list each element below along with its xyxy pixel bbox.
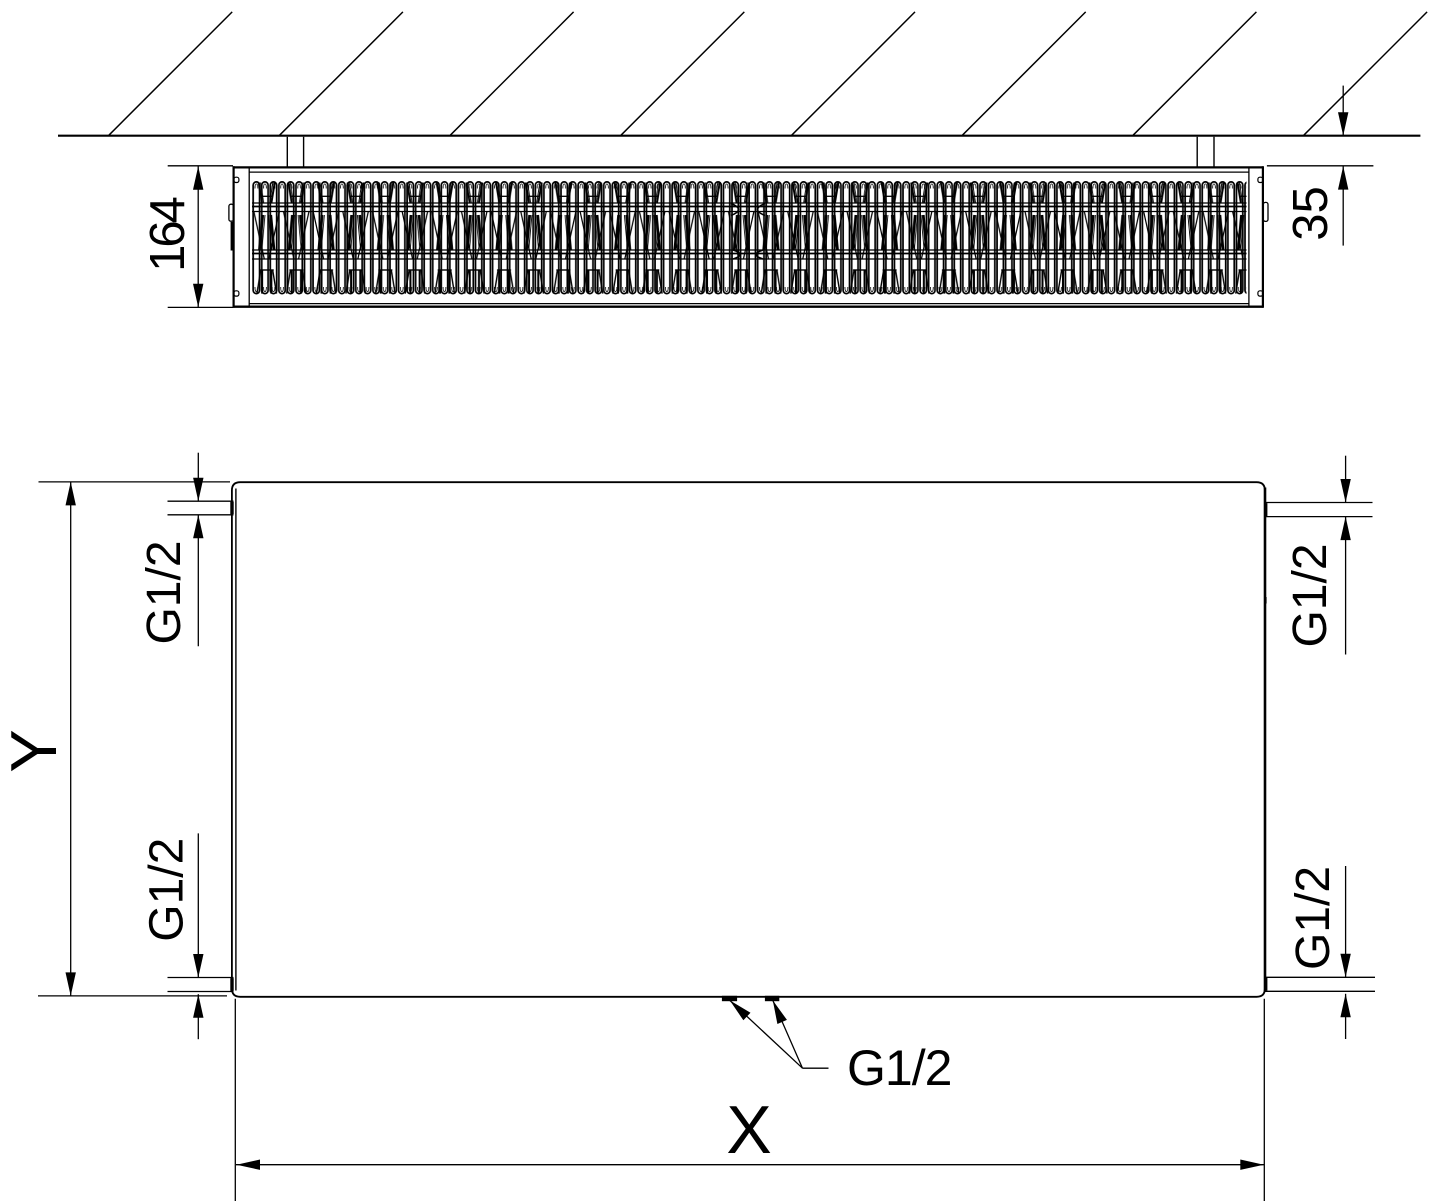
svg-text:G1/2: G1/2 xyxy=(141,838,194,942)
svg-text:164: 164 xyxy=(141,197,195,272)
svg-text:Y: Y xyxy=(0,729,70,772)
svg-text:X: X xyxy=(726,1092,771,1168)
svg-text:G1/2: G1/2 xyxy=(847,1040,951,1096)
svg-text:G1/2: G1/2 xyxy=(1287,866,1340,970)
svg-text:35: 35 xyxy=(1284,186,1338,241)
svg-text:G1/2: G1/2 xyxy=(138,540,191,644)
svg-text:G1/2: G1/2 xyxy=(1284,543,1337,647)
